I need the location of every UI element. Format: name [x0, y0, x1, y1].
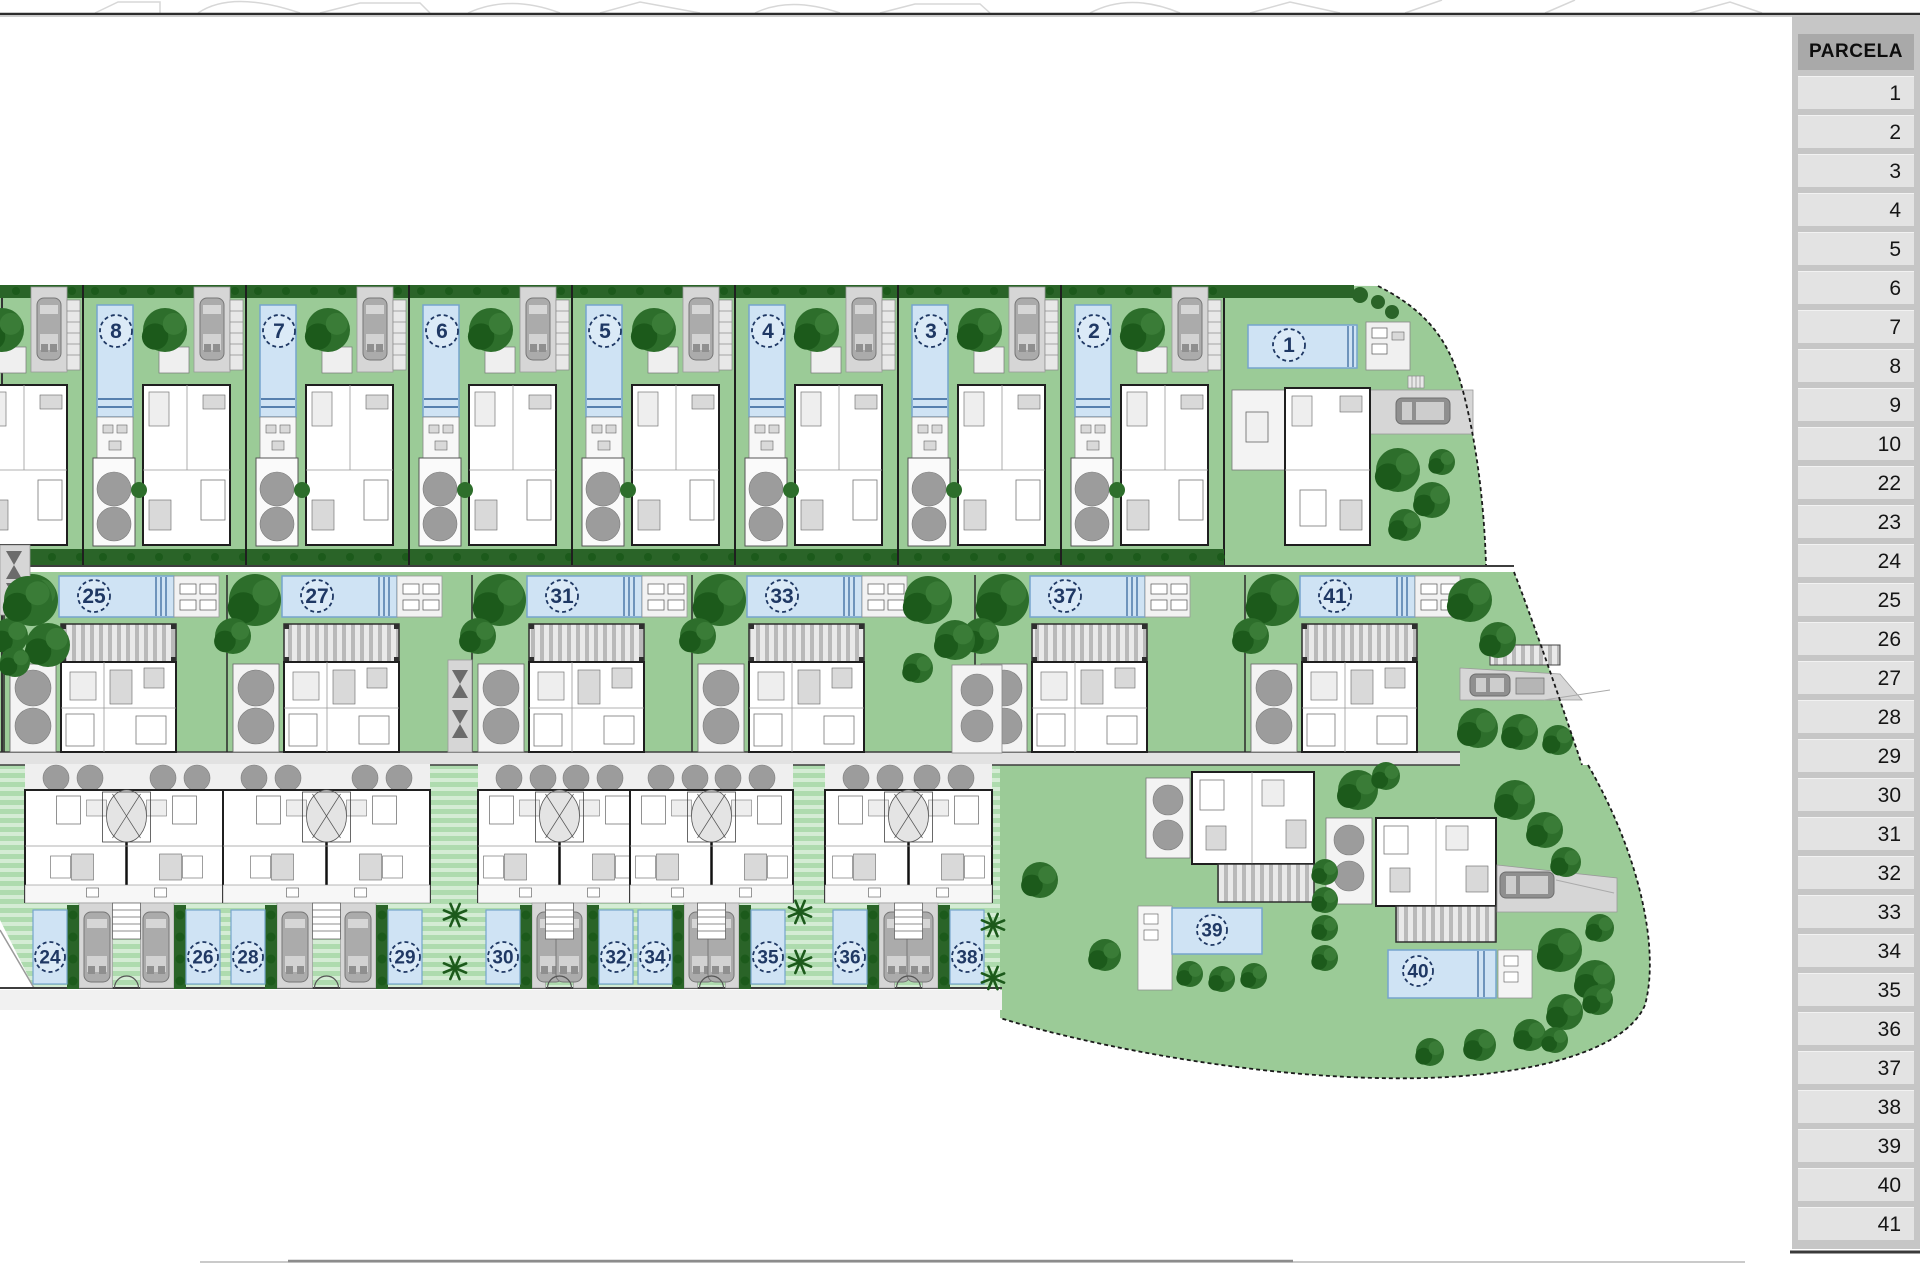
- parcel-badge-37[interactable]: 37: [1049, 580, 1081, 612]
- parcela-table: PARCELA 12345678910222324252627282930313…: [1792, 15, 1920, 1249]
- parcel-badge-38[interactable]: 38: [952, 942, 982, 972]
- svg-text:8: 8: [110, 320, 122, 343]
- svg-text:31: 31: [550, 585, 574, 608]
- parcel-badge-39[interactable]: 39: [1197, 915, 1227, 945]
- parcel-badge-24[interactable]: 24: [35, 942, 65, 972]
- parcel-badge-4[interactable]: 4: [752, 315, 784, 347]
- site-plan-canvas: 9876543212527313337412426282930323435363…: [0, 0, 1920, 1280]
- svg-text:41: 41: [1323, 585, 1347, 608]
- parcela-row-36[interactable]: 36: [1798, 1012, 1914, 1045]
- parcela-row-26[interactable]: 26: [1798, 622, 1914, 655]
- svg-text:27: 27: [305, 585, 328, 608]
- parcel-badge-41[interactable]: 41: [1319, 580, 1351, 612]
- parcela-row-9[interactable]: 9: [1798, 388, 1914, 421]
- svg-text:2: 2: [1088, 320, 1100, 343]
- parcel-badge-28[interactable]: 28: [233, 942, 263, 972]
- svg-text:6: 6: [436, 320, 448, 343]
- parcela-row-7[interactable]: 7: [1798, 310, 1914, 343]
- parcel-badge-27[interactable]: 27: [301, 580, 333, 612]
- parcela-row-6[interactable]: 6: [1798, 271, 1914, 304]
- parcela-row-27[interactable]: 27: [1798, 661, 1914, 694]
- svg-text:34: 34: [644, 947, 666, 968]
- parcel-badge-34[interactable]: 34: [640, 942, 670, 972]
- parcela-row-32[interactable]: 32: [1798, 856, 1914, 889]
- parcela-row-39[interactable]: 39: [1798, 1129, 1914, 1162]
- svg-text:38: 38: [956, 947, 977, 968]
- parcel-badge-35[interactable]: 35: [753, 942, 783, 972]
- parcela-row-41[interactable]: 41: [1798, 1207, 1914, 1240]
- svg-text:29: 29: [394, 947, 415, 968]
- parcel-badge-7[interactable]: 7: [263, 315, 295, 347]
- parcela-row-30[interactable]: 30: [1798, 778, 1914, 811]
- parcela-row-33[interactable]: 33: [1798, 895, 1914, 928]
- svg-text:1: 1: [1283, 334, 1295, 357]
- parcel-badge-5[interactable]: 5: [589, 315, 621, 347]
- parcel-badge-32[interactable]: 32: [601, 942, 631, 972]
- parcela-row-35[interactable]: 35: [1798, 973, 1914, 1006]
- parcel-badge-3[interactable]: 3: [915, 315, 947, 347]
- parcela-row-8[interactable]: 8: [1798, 349, 1914, 382]
- parcela-row-28[interactable]: 28: [1798, 700, 1914, 733]
- svg-text:3: 3: [925, 320, 937, 343]
- parcela-row-29[interactable]: 29: [1798, 739, 1914, 772]
- parcela-row-3[interactable]: 3: [1798, 154, 1914, 187]
- svg-text:4: 4: [762, 320, 774, 343]
- parcela-header: PARCELA: [1798, 34, 1914, 70]
- svg-text:26: 26: [192, 947, 213, 968]
- parcel-badge-8[interactable]: 8: [100, 315, 132, 347]
- sketch-strip: [95, 0, 1762, 13]
- svg-text:30: 30: [492, 947, 513, 968]
- svg-text:36: 36: [839, 947, 860, 968]
- parcela-row-25[interactable]: 25: [1798, 583, 1914, 616]
- parcela-row-40[interactable]: 40: [1798, 1168, 1914, 1201]
- svg-text:28: 28: [237, 947, 258, 968]
- parcel-badge-31[interactable]: 31: [546, 580, 578, 612]
- parcela-row-38[interactable]: 38: [1798, 1090, 1914, 1123]
- svg-text:40: 40: [1407, 961, 1428, 982]
- parcel-badge-6[interactable]: 6: [426, 315, 458, 347]
- svg-text:24: 24: [39, 947, 61, 968]
- parcel-badge-33[interactable]: 33: [766, 580, 798, 612]
- parcel-badge-26[interactable]: 26: [188, 942, 218, 972]
- parcela-row-22[interactable]: 22: [1798, 466, 1914, 499]
- parcel-badge-25[interactable]: 25: [78, 580, 110, 612]
- parcel-badge-29[interactable]: 29: [390, 942, 420, 972]
- parcel-badge-1[interactable]: 1: [1273, 329, 1305, 361]
- parcela-row-2[interactable]: 2: [1798, 115, 1914, 148]
- parcela-row-5[interactable]: 5: [1798, 232, 1914, 265]
- parcela-row-10[interactable]: 10: [1798, 427, 1914, 460]
- svg-text:32: 32: [605, 947, 626, 968]
- parcel-badge-40[interactable]: 40: [1403, 956, 1433, 986]
- parcela-row-31[interactable]: 31: [1798, 817, 1914, 850]
- svg-text:5: 5: [599, 320, 611, 343]
- parcela-row-34[interactable]: 34: [1798, 934, 1914, 967]
- parcela-row-37[interactable]: 37: [1798, 1051, 1914, 1084]
- svg-text:33: 33: [770, 585, 793, 608]
- parcela-row-4[interactable]: 4: [1798, 193, 1914, 226]
- parcela-row-1[interactable]: 1: [1798, 76, 1914, 109]
- parcel-badge-30[interactable]: 30: [488, 942, 518, 972]
- parcel-badge-36[interactable]: 36: [835, 942, 865, 972]
- svg-text:25: 25: [82, 585, 106, 608]
- parcela-row-24[interactable]: 24: [1798, 544, 1914, 577]
- parcel-badge-2[interactable]: 2: [1078, 315, 1110, 347]
- svg-text:37: 37: [1053, 585, 1076, 608]
- svg-text:7: 7: [273, 320, 285, 343]
- svg-text:39: 39: [1201, 920, 1222, 941]
- svg-text:35: 35: [757, 947, 779, 968]
- parcela-row-23[interactable]: 23: [1798, 505, 1914, 538]
